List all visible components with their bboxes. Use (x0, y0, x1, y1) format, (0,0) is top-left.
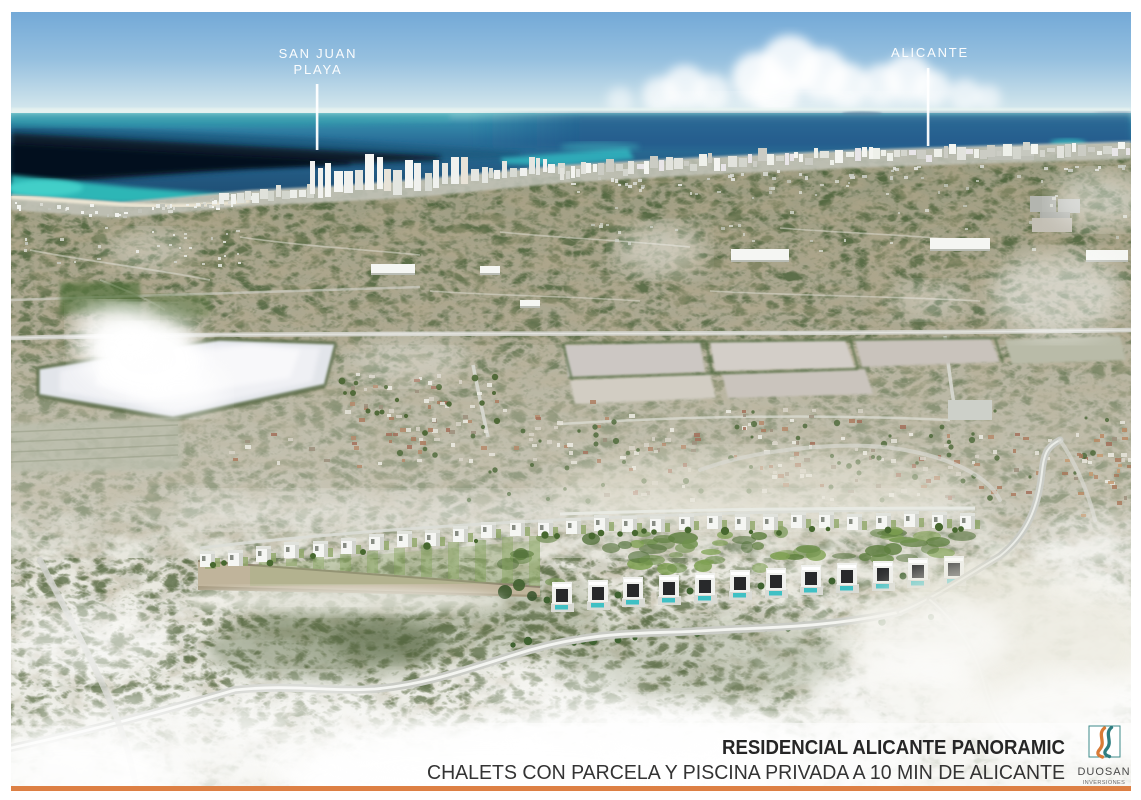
svg-text:INVERSIONES: INVERSIONES (1083, 780, 1126, 786)
svg-text:ALICANTE: ALICANTE (891, 45, 969, 60)
svg-text:RESIDENCIAL ALICANTE PANORAMIC: RESIDENCIAL ALICANTE PANORAMIC (722, 737, 1065, 759)
svg-text:DUOSAN: DUOSAN (1077, 766, 1130, 778)
svg-text:PLAYA: PLAYA (294, 62, 343, 77)
svg-text:SAN JUAN: SAN JUAN (279, 46, 358, 61)
svg-text:CHALETS CON PARCELA Y PISCINA: CHALETS CON PARCELA Y PISCINA PRIVADA A … (427, 761, 1065, 784)
